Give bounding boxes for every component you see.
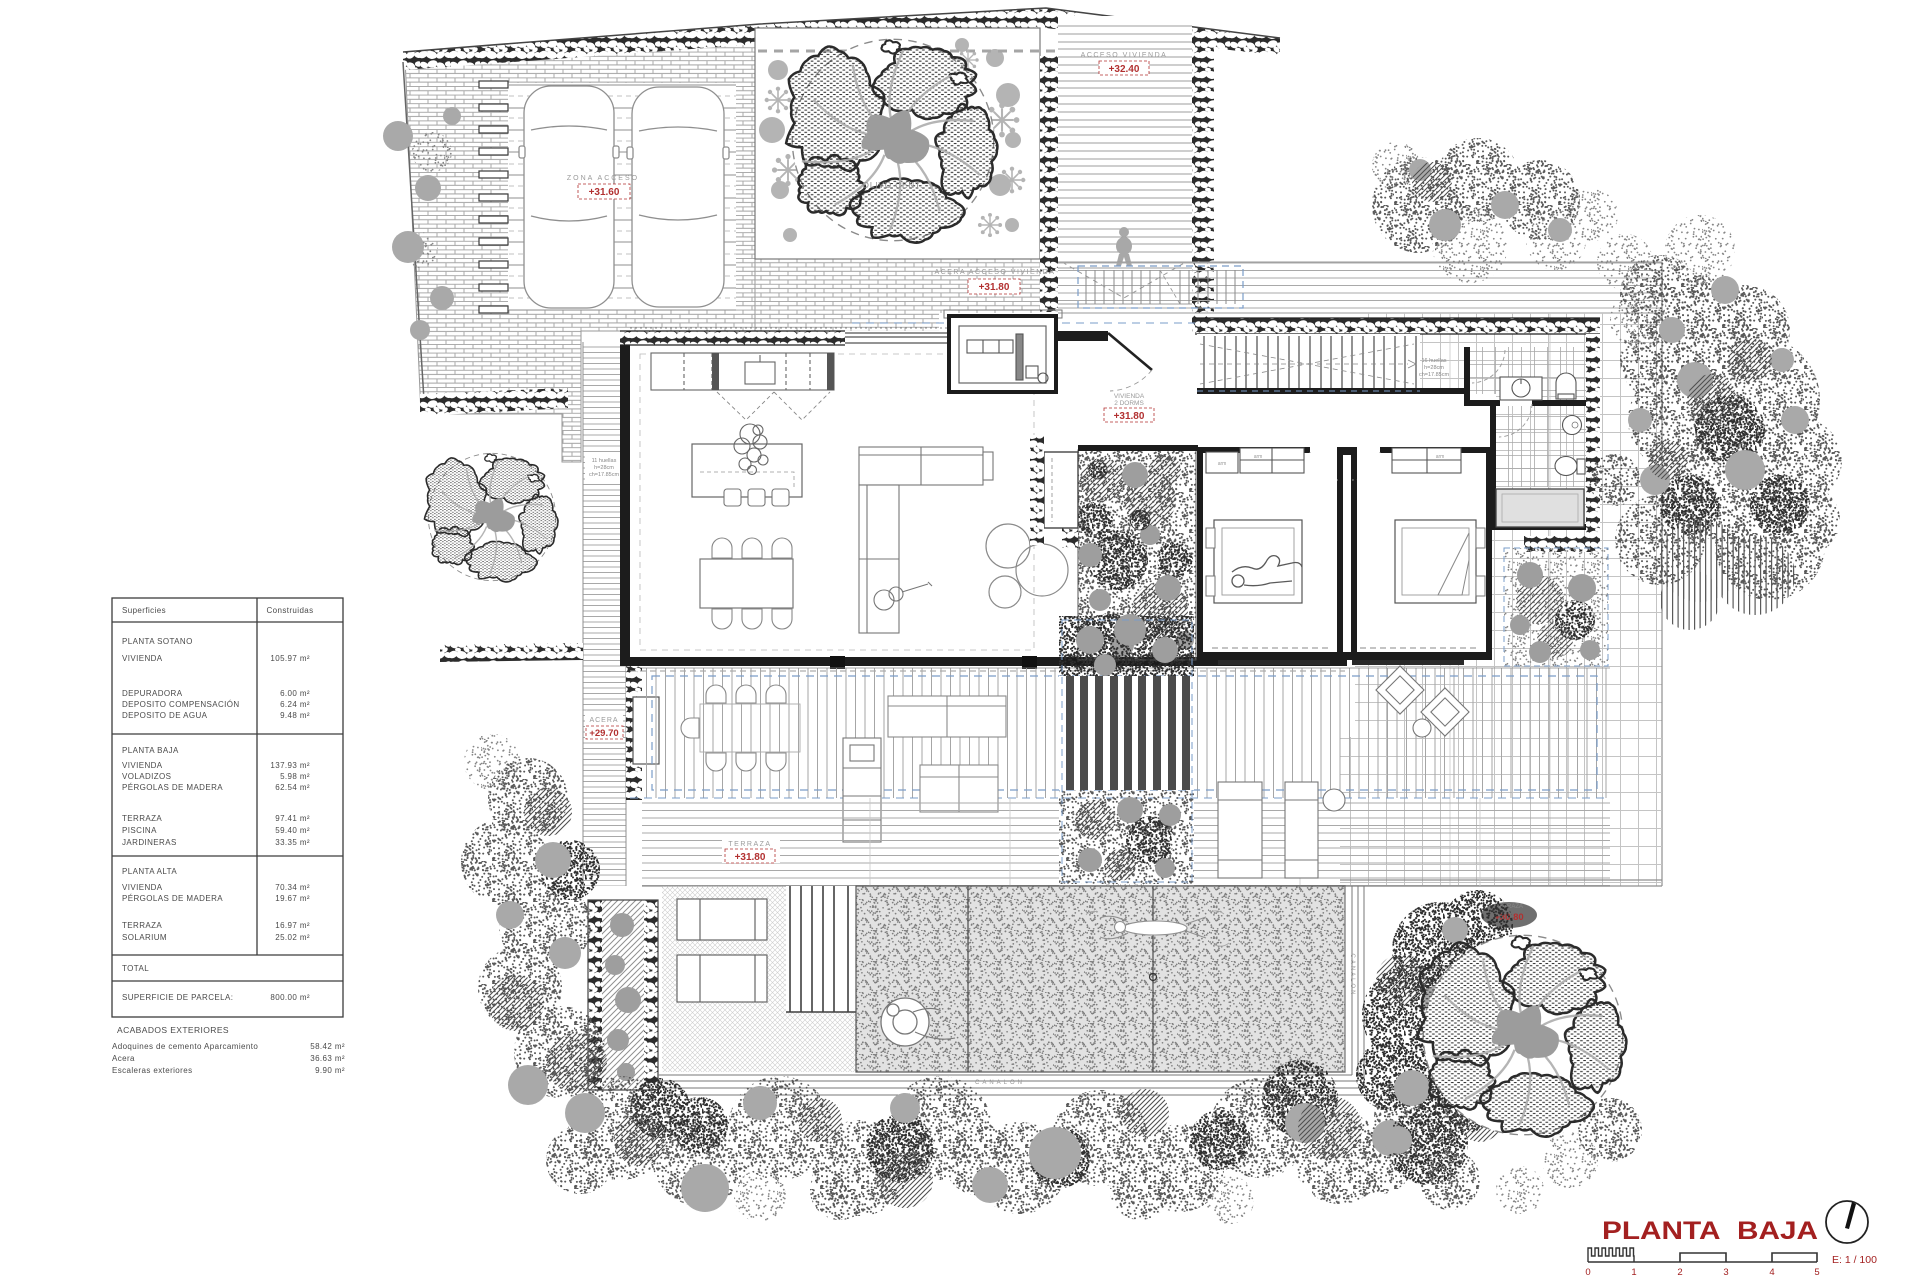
svg-text:58.42 m²: 58.42 m² xyxy=(310,1042,345,1051)
svg-text:DEPOSITO COMPENSACIÓN: DEPOSITO COMPENSACIÓN xyxy=(122,700,240,709)
svg-text:Construidas: Construidas xyxy=(266,606,313,615)
svg-text:VIVIENDA: VIVIENDA xyxy=(122,883,163,892)
svg-text:137.93 m²: 137.93 m² xyxy=(270,761,310,770)
svg-text:+31.80: +31.80 xyxy=(735,852,766,863)
svg-text:11 huellas: 11 huellas xyxy=(592,458,617,464)
svg-text:OLIVO CENT.: OLIVO CENT. xyxy=(863,181,924,190)
svg-text:CANALON: CANALON xyxy=(975,1080,1025,1086)
svg-text:ch=17.85cm: ch=17.85cm xyxy=(1419,372,1450,378)
svg-text:CANALON: CANALON xyxy=(1349,953,1355,996)
svg-text:TOTAL: TOTAL xyxy=(122,964,149,973)
svg-text:97.41 m²: 97.41 m² xyxy=(275,814,310,823)
svg-text:Superficies: Superficies xyxy=(122,606,166,615)
svg-text:+29.70: +29.70 xyxy=(589,728,618,739)
svg-text:0: 0 xyxy=(1585,1267,1590,1278)
svg-text:25.02 m²: 25.02 m² xyxy=(275,933,310,942)
svg-text:PLANTA BAJA: PLANTA BAJA xyxy=(1602,1217,1818,1245)
svg-text:19.67 m²: 19.67 m² xyxy=(275,894,310,903)
svg-text:TERRAZA: TERRAZA xyxy=(122,921,162,930)
svg-text:6.24 m²: 6.24 m² xyxy=(280,700,310,709)
svg-text:PISCINA: PISCINA xyxy=(122,826,157,835)
svg-text:Escaleras exteriores: Escaleras exteriores xyxy=(112,1066,192,1075)
svg-text:59.40 m²: 59.40 m² xyxy=(275,826,310,835)
svg-text:16 huellas: 16 huellas xyxy=(1421,358,1446,364)
svg-text:ACABADOS EXTERIORES: ACABADOS EXTERIORES xyxy=(117,1025,229,1035)
svg-text:6.00 m²: 6.00 m² xyxy=(280,689,310,698)
svg-text:VOLADIZOS: VOLADIZOS xyxy=(122,772,171,781)
svg-text:h=28cm: h=28cm xyxy=(1424,365,1444,371)
svg-text:VIVIENDA: VIVIENDA xyxy=(1114,393,1145,400)
svg-text:33.35 m²: 33.35 m² xyxy=(275,838,310,847)
svg-text:DEPURADORA: DEPURADORA xyxy=(122,689,183,698)
svg-text:SUPERFICIE DE PARCELA:: SUPERFICIE DE PARCELA: xyxy=(122,993,233,1002)
svg-text:5.98 m²: 5.98 m² xyxy=(280,772,310,781)
svg-text:36.63 m²: 36.63 m² xyxy=(310,1054,345,1063)
svg-text:E: 1 / 100: E: 1 / 100 xyxy=(1832,1254,1877,1266)
svg-text:PLANTA ALTA: PLANTA ALTA xyxy=(122,867,177,876)
svg-text:h=28cm: h=28cm xyxy=(594,465,614,471)
svg-text:800.00 m²: 800.00 m² xyxy=(270,993,310,1002)
svg-text:PÉRGOLAS DE MADERA: PÉRGOLAS DE MADERA xyxy=(122,783,223,792)
svg-text:ACERA: ACERA xyxy=(589,717,618,724)
svg-text:105.97 m²: 105.97 m² xyxy=(270,654,310,663)
svg-text:9.48 m²: 9.48 m² xyxy=(280,711,310,720)
svg-text:ACERA ACCESO VIVIENDA: ACERA ACCESO VIVIENDA xyxy=(935,269,1056,276)
svg-text:+31.60: +31.60 xyxy=(589,187,620,198)
svg-text:4: 4 xyxy=(1769,1267,1774,1278)
svg-text:arm: arm xyxy=(1218,461,1227,467)
svg-text:SOLARIUM: SOLARIUM xyxy=(122,933,167,942)
svg-text:TERRAZA: TERRAZA xyxy=(728,841,771,848)
svg-text:+31.80: +31.80 xyxy=(979,282,1010,293)
svg-text:PÉRGOLAS DE MADERA: PÉRGOLAS DE MADERA xyxy=(122,894,223,903)
svg-text:ZONA ACCESO: ZONA ACCESO xyxy=(567,175,639,182)
svg-text:2: 2 xyxy=(1677,1267,1682,1278)
svg-text:Adoquines de cemento Aparcamie: Adoquines de cemento Aparcamiento xyxy=(112,1042,258,1051)
svg-text:ch=17.85cm: ch=17.85cm xyxy=(589,472,620,478)
svg-text:DEPOSITO DE AGUA: DEPOSITO DE AGUA xyxy=(122,711,208,720)
svg-text:TERRAZA: TERRAZA xyxy=(122,814,162,823)
svg-text:2 DORMS: 2 DORMS xyxy=(1114,400,1144,407)
svg-text:VIVIENDA: VIVIENDA xyxy=(122,761,163,770)
svg-text:PLANTA SOTANO: PLANTA SOTANO xyxy=(122,637,193,646)
svg-text:70.34 m²: 70.34 m² xyxy=(275,883,310,892)
svg-text:VIVIENDA: VIVIENDA xyxy=(122,654,163,663)
svg-text:3: 3 xyxy=(1723,1267,1728,1278)
svg-text:Acera: Acera xyxy=(112,1054,135,1063)
svg-text:arm: arm xyxy=(1436,454,1445,460)
svg-text:+32.40: +32.40 xyxy=(1109,64,1140,75)
svg-text:1: 1 xyxy=(1631,1267,1636,1278)
svg-text:JARDINERAS: JARDINERAS xyxy=(122,838,177,847)
svg-text:+31.80: +31.80 xyxy=(1114,411,1145,422)
svg-text:9.90 m²: 9.90 m² xyxy=(315,1066,345,1075)
svg-text:16.97 m²: 16.97 m² xyxy=(275,921,310,930)
svg-text:5: 5 xyxy=(1814,1267,1819,1278)
svg-text:ACCESO VIVIENDA: ACCESO VIVIENDA xyxy=(1081,52,1168,59)
svg-text:arm: arm xyxy=(1254,454,1263,460)
svg-text:62.54 m²: 62.54 m² xyxy=(275,783,310,792)
svg-text:PLANTA BAJA: PLANTA BAJA xyxy=(122,746,179,755)
